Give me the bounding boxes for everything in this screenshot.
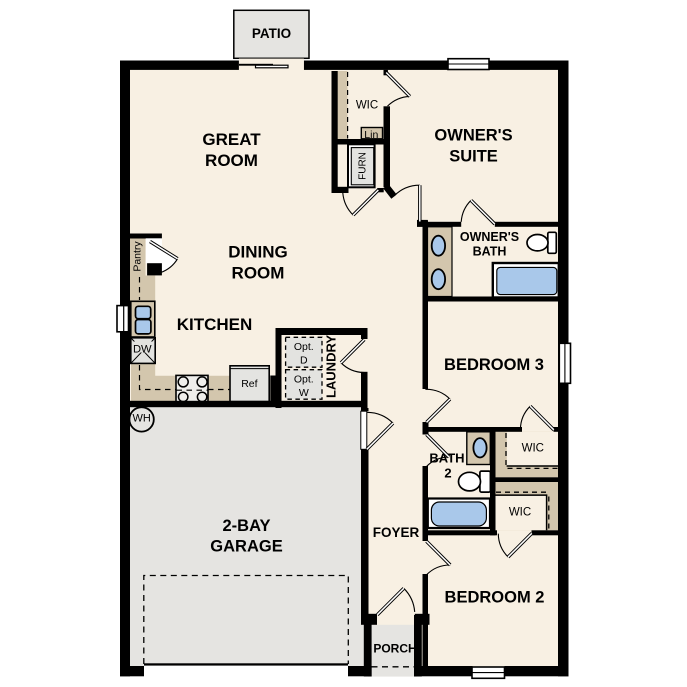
svg-text:2-BAY: 2-BAY bbox=[223, 517, 271, 535]
svg-text:BEDROOM 3: BEDROOM 3 bbox=[444, 356, 544, 374]
svg-text:DINING: DINING bbox=[228, 243, 288, 262]
svg-text:Ref: Ref bbox=[241, 378, 257, 390]
svg-text:FURN: FURN bbox=[358, 152, 369, 180]
svg-text:2: 2 bbox=[444, 466, 451, 481]
svg-text:KITCHEN: KITCHEN bbox=[177, 315, 253, 334]
svg-text:Pantry: Pantry bbox=[131, 241, 143, 272]
svg-text:PATIO: PATIO bbox=[252, 26, 291, 41]
svg-text:D: D bbox=[300, 355, 308, 367]
svg-text:BEDROOM 2: BEDROOM 2 bbox=[445, 589, 545, 607]
svg-text:Opt.: Opt. bbox=[294, 374, 314, 386]
svg-text:W: W bbox=[299, 387, 309, 399]
svg-text:GARAGE: GARAGE bbox=[210, 538, 282, 556]
svg-text:WIC: WIC bbox=[356, 100, 378, 112]
svg-text:DW: DW bbox=[133, 344, 152, 356]
svg-text:OWNER'S: OWNER'S bbox=[460, 230, 519, 244]
svg-text:ROOM: ROOM bbox=[205, 151, 258, 170]
svg-text:WIC: WIC bbox=[509, 507, 531, 519]
svg-text:Opt.: Opt. bbox=[294, 341, 314, 353]
svg-text:ROOM: ROOM bbox=[232, 264, 285, 283]
svg-text:WIC: WIC bbox=[522, 443, 544, 455]
svg-text:WH: WH bbox=[133, 413, 151, 425]
svg-text:BATH: BATH bbox=[473, 245, 507, 259]
svg-text:OWNER'S: OWNER'S bbox=[434, 127, 512, 145]
svg-text:FOYER: FOYER bbox=[373, 525, 420, 540]
svg-text:PORCH: PORCH bbox=[373, 642, 416, 656]
svg-text:SUITE: SUITE bbox=[449, 148, 498, 166]
svg-text:GREAT: GREAT bbox=[202, 130, 261, 149]
svg-text:LAUNDRY: LAUNDRY bbox=[324, 335, 339, 398]
